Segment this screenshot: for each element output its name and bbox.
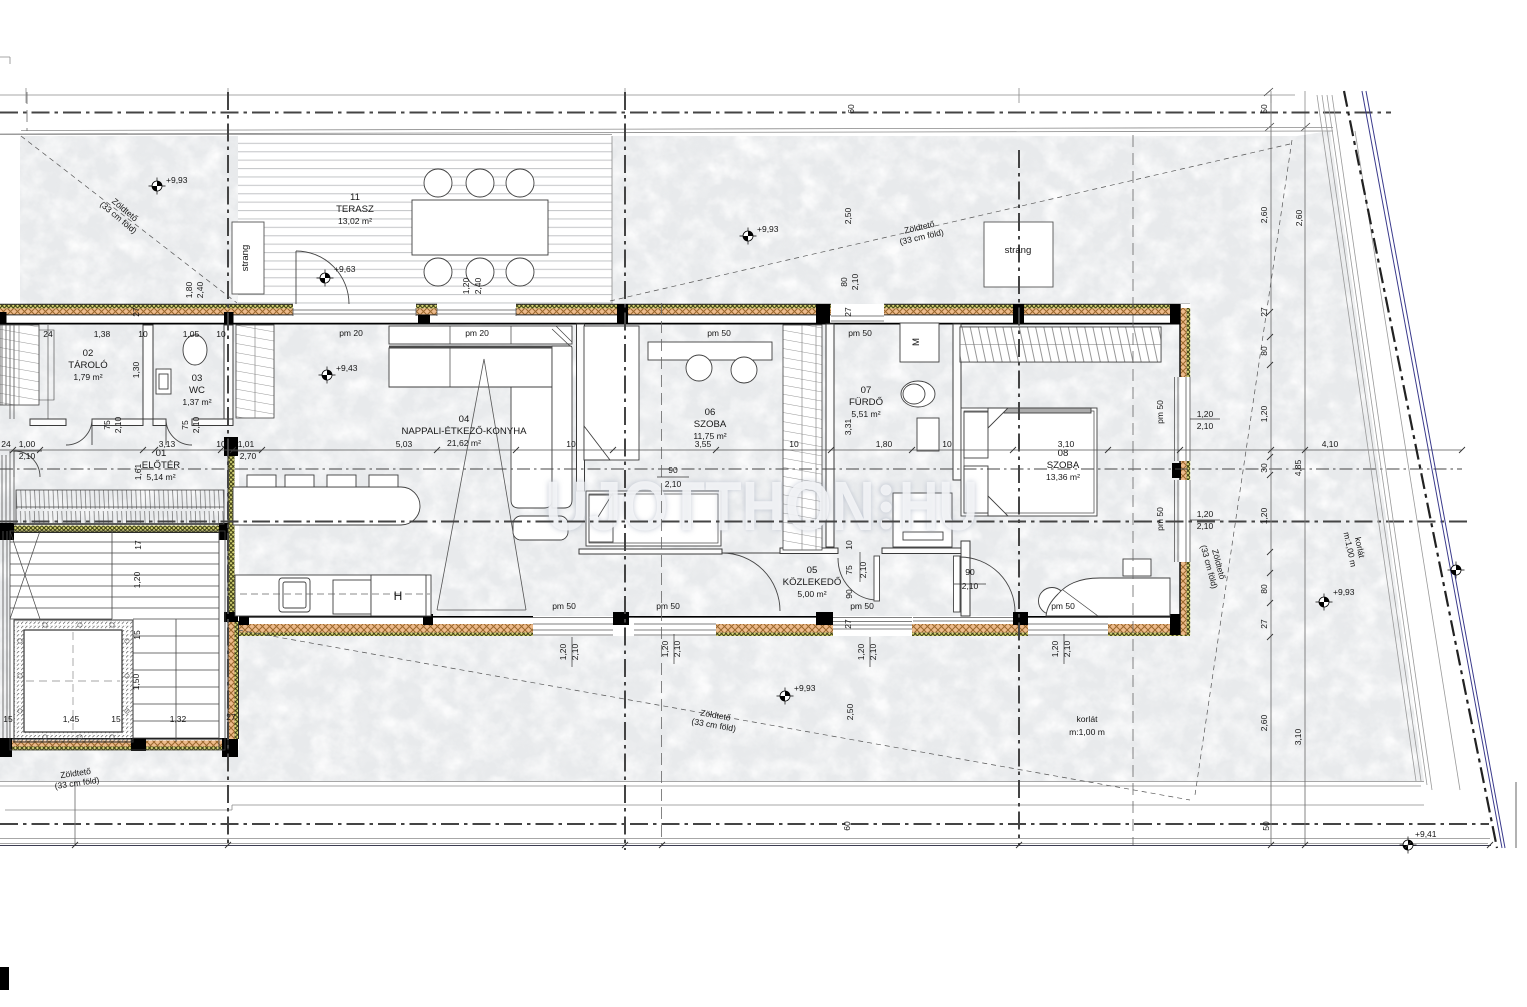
svg-text:H: H bbox=[394, 589, 403, 603]
svg-text:24: 24 bbox=[1, 439, 11, 449]
svg-text:30: 30 bbox=[1259, 463, 1269, 473]
svg-text:17: 17 bbox=[133, 540, 143, 550]
svg-text:27: 27 bbox=[131, 307, 141, 317]
svg-text:korlát: korlát bbox=[1076, 714, 1098, 724]
svg-text:10: 10 bbox=[942, 439, 952, 449]
svg-text:2,10: 2,10 bbox=[672, 640, 682, 657]
svg-text:2,10: 2,10 bbox=[1062, 640, 1072, 657]
svg-text:10: 10 bbox=[844, 540, 854, 550]
svg-text:1,20: 1,20 bbox=[132, 571, 142, 588]
svg-text:pm 20: pm 20 bbox=[465, 328, 489, 338]
svg-text:50: 50 bbox=[1261, 821, 1271, 831]
svg-text:01: 01 bbox=[156, 448, 167, 459]
svg-text:UJOTTHON: UJOTTHON bbox=[545, 467, 875, 545]
svg-text:05: 05 bbox=[807, 565, 818, 576]
svg-text:WC: WC bbox=[189, 385, 205, 396]
svg-text:3,13: 3,13 bbox=[159, 439, 176, 449]
svg-text:+9,93: +9,93 bbox=[1333, 587, 1355, 597]
svg-text:06: 06 bbox=[705, 407, 716, 418]
svg-text:3,10: 3,10 bbox=[1058, 439, 1075, 449]
svg-text:80: 80 bbox=[1259, 584, 1269, 594]
svg-text:2,10: 2,10 bbox=[665, 479, 682, 489]
svg-text:02: 02 bbox=[83, 348, 94, 359]
svg-text:TERASZ: TERASZ bbox=[336, 204, 374, 215]
svg-text:2,10: 2,10 bbox=[113, 416, 123, 433]
svg-text:1,20: 1,20 bbox=[1259, 507, 1269, 524]
svg-text:75: 75 bbox=[844, 565, 854, 575]
svg-text:1,20: 1,20 bbox=[856, 643, 866, 660]
svg-text:13,02 m²: 13,02 m² bbox=[338, 216, 372, 226]
svg-text:10: 10 bbox=[789, 439, 799, 449]
svg-text:50: 50 bbox=[1259, 104, 1269, 114]
svg-text:2,60: 2,60 bbox=[1259, 714, 1269, 731]
svg-text:1,01: 1,01 bbox=[238, 439, 255, 449]
svg-text:pm 50: pm 50 bbox=[850, 601, 874, 611]
svg-text:75: 75 bbox=[180, 420, 190, 430]
svg-text:+9,41: +9,41 bbox=[1415, 829, 1437, 839]
svg-text:1,00: 1,00 bbox=[19, 439, 36, 449]
svg-text:2,10: 2,10 bbox=[850, 273, 860, 290]
svg-text:+9,93: +9,93 bbox=[757, 224, 779, 234]
svg-text:M: M bbox=[911, 338, 922, 346]
svg-text:2,10: 2,10 bbox=[1197, 421, 1214, 431]
svg-text:KÖZLEKEDŐ: KÖZLEKEDŐ bbox=[783, 577, 842, 588]
svg-text:3,31: 3,31 bbox=[843, 418, 853, 435]
svg-text:2,10: 2,10 bbox=[1197, 521, 1214, 531]
svg-text:1,45: 1,45 bbox=[63, 714, 80, 724]
svg-text:90: 90 bbox=[844, 589, 854, 599]
svg-text:+9,63: +9,63 bbox=[334, 264, 356, 274]
svg-text:10: 10 bbox=[566, 439, 576, 449]
svg-text:2,50: 2,50 bbox=[843, 207, 853, 224]
svg-text:11: 11 bbox=[350, 192, 360, 203]
svg-text:10: 10 bbox=[138, 329, 148, 339]
svg-text:pm 20: pm 20 bbox=[339, 328, 363, 338]
svg-text:2,10: 2,10 bbox=[570, 643, 580, 660]
svg-text:04: 04 bbox=[459, 414, 470, 425]
svg-text:pm 50: pm 50 bbox=[656, 601, 680, 611]
svg-text:10: 10 bbox=[216, 439, 226, 449]
svg-text:+9,93: +9,93 bbox=[794, 683, 816, 693]
svg-text:27: 27 bbox=[1259, 307, 1269, 317]
svg-text:07: 07 bbox=[861, 385, 872, 396]
svg-text:1,38: 1,38 bbox=[94, 329, 111, 339]
svg-text:5,51 m²: 5,51 m² bbox=[851, 409, 880, 419]
svg-text:SZOBA: SZOBA bbox=[1047, 460, 1080, 471]
svg-text:1,20: 1,20 bbox=[1197, 409, 1214, 419]
svg-text:60: 60 bbox=[842, 821, 852, 831]
svg-text:HU: HU bbox=[899, 467, 978, 545]
svg-text:2,10: 2,10 bbox=[191, 416, 201, 433]
svg-text:pm 50: pm 50 bbox=[848, 328, 872, 338]
svg-text:1,20: 1,20 bbox=[1197, 509, 1214, 519]
svg-text:2,10: 2,10 bbox=[858, 561, 868, 578]
svg-text:NAPPALI-ÉTKEZŐ-KONYHA: NAPPALI-ÉTKEZŐ-KONYHA bbox=[401, 426, 527, 437]
svg-text:1,80: 1,80 bbox=[184, 281, 194, 298]
svg-text:15: 15 bbox=[111, 714, 121, 724]
svg-text:4,10: 4,10 bbox=[1322, 439, 1339, 449]
svg-text:90: 90 bbox=[965, 567, 975, 577]
svg-text:5,00 m²: 5,00 m² bbox=[797, 589, 826, 599]
svg-text:1,79 m²: 1,79 m² bbox=[73, 372, 102, 382]
svg-text:strang: strang bbox=[1005, 245, 1032, 256]
svg-text:pm 50: pm 50 bbox=[707, 328, 731, 338]
svg-text:1,20: 1,20 bbox=[558, 643, 568, 660]
svg-text:80: 80 bbox=[839, 277, 849, 287]
svg-text:1,20: 1,20 bbox=[1050, 640, 1060, 657]
svg-text:60: 60 bbox=[846, 104, 856, 114]
svg-text:1,32: 1,32 bbox=[170, 714, 187, 724]
svg-text:2,10: 2,10 bbox=[962, 581, 979, 591]
svg-text:24: 24 bbox=[43, 329, 53, 339]
svg-text:+9,93: +9,93 bbox=[166, 175, 188, 185]
svg-text:03: 03 bbox=[192, 373, 203, 384]
svg-text:2,10: 2,10 bbox=[868, 643, 878, 660]
svg-text:2,10: 2,10 bbox=[19, 451, 36, 461]
svg-text:1,20: 1,20 bbox=[660, 640, 670, 657]
svg-text:1,37 m²: 1,37 m² bbox=[182, 397, 211, 407]
svg-text:1,61: 1,61 bbox=[133, 463, 143, 480]
svg-text:90: 90 bbox=[668, 465, 678, 475]
svg-text:4,85: 4,85 bbox=[1293, 459, 1303, 476]
svg-text:5,14 m²: 5,14 m² bbox=[146, 472, 175, 482]
svg-text:pm 50: pm 50 bbox=[1155, 400, 1165, 424]
svg-text:3,10: 3,10 bbox=[1293, 728, 1303, 745]
svg-text:2,60: 2,60 bbox=[1294, 209, 1304, 226]
svg-text:27: 27 bbox=[226, 712, 236, 722]
svg-text:pm 50: pm 50 bbox=[1051, 601, 1075, 611]
svg-text:2,40: 2,40 bbox=[195, 281, 205, 298]
svg-text:1,20: 1,20 bbox=[461, 277, 471, 294]
svg-text:m:1,00 m: m:1,00 m bbox=[1069, 727, 1105, 737]
svg-text:1,80: 1,80 bbox=[876, 439, 893, 449]
svg-text:pm 50: pm 50 bbox=[1155, 507, 1165, 531]
svg-text:FÜRDŐ: FÜRDŐ bbox=[849, 397, 883, 408]
svg-text:08: 08 bbox=[1058, 448, 1069, 459]
svg-text:27: 27 bbox=[843, 307, 853, 317]
svg-text:2,60: 2,60 bbox=[1259, 206, 1269, 223]
svg-text:pm 50: pm 50 bbox=[552, 601, 576, 611]
svg-text:1,30: 1,30 bbox=[131, 361, 141, 378]
svg-text:15: 15 bbox=[3, 714, 13, 724]
svg-text:21,62 m²: 21,62 m² bbox=[447, 438, 481, 448]
svg-text:1,05: 1,05 bbox=[183, 329, 200, 339]
svg-text:75: 75 bbox=[102, 420, 112, 430]
svg-text:80: 80 bbox=[1259, 346, 1269, 356]
svg-text:15: 15 bbox=[132, 630, 142, 640]
svg-text:strang: strang bbox=[240, 245, 251, 272]
svg-text:ELŐTÉR: ELŐTÉR bbox=[142, 460, 180, 471]
svg-text:5,03: 5,03 bbox=[396, 439, 413, 449]
svg-text:1,20: 1,20 bbox=[1259, 405, 1269, 422]
svg-text:27: 27 bbox=[1259, 619, 1269, 629]
svg-text:2,40: 2,40 bbox=[473, 277, 483, 294]
svg-text:27: 27 bbox=[843, 619, 853, 629]
svg-text:2,70: 2,70 bbox=[240, 451, 257, 461]
svg-text:13,36 m²: 13,36 m² bbox=[1046, 472, 1080, 482]
svg-text:2,50: 2,50 bbox=[845, 703, 855, 720]
svg-text:TÁROLÓ: TÁROLÓ bbox=[68, 360, 107, 371]
svg-text:SZOBA: SZOBA bbox=[694, 419, 727, 430]
svg-text:3,55: 3,55 bbox=[695, 439, 712, 449]
svg-text:10: 10 bbox=[216, 329, 226, 339]
svg-text:1,50: 1,50 bbox=[131, 673, 141, 690]
svg-text:+9,43: +9,43 bbox=[336, 363, 358, 373]
